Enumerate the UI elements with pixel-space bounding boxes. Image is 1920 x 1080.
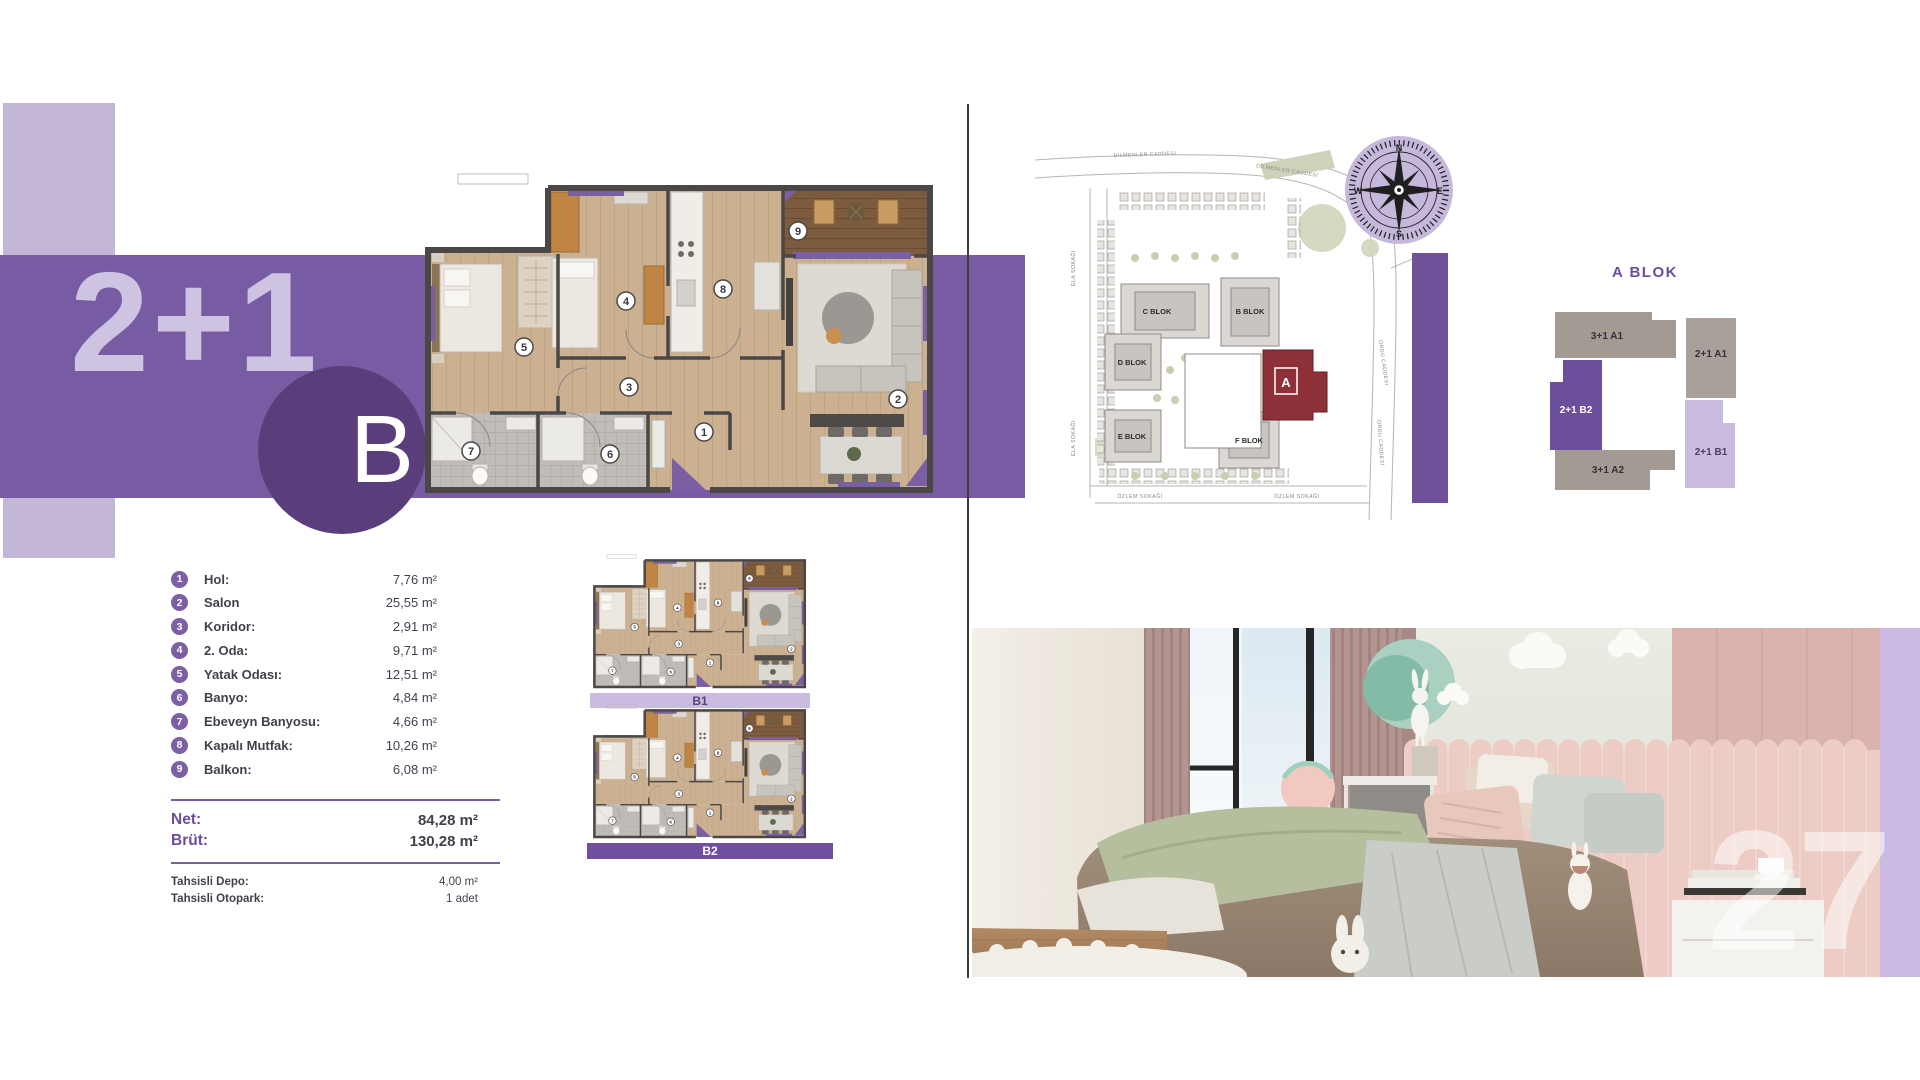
net-label: Net: [171, 811, 201, 829]
room-area: 9,71 m² [393, 643, 437, 658]
brut-label: Brüt: [171, 832, 208, 850]
list-item: 7Ebeveyn Banyosu:4,66 m² [171, 713, 437, 731]
block-diagram: A BLOK 3+1 A1 2+1 A1 2+1 B2 2+1 B1 3+1 A… [1540, 255, 1750, 500]
unit-variant-circle: B [258, 366, 426, 534]
room-label: Banyo: [204, 690, 248, 705]
otopark-label: Tahsisli Otopark: [171, 893, 264, 905]
room-label: Ebeveyn Banyosu: [204, 714, 320, 729]
map-block-a-label: A [1281, 375, 1291, 390]
room-label: Kapalı Mutfak: [204, 738, 293, 753]
map-label-e-blok: E BLOK [1118, 432, 1147, 441]
room-label: Balkon: [204, 762, 252, 777]
vertical-divider [967, 104, 969, 978]
depo-row: Tahsisli Depo: 4,00 m² [171, 876, 500, 888]
list-item: 8Kapalı Mutfak:10,26 m² [171, 736, 437, 754]
room-list: 1Hol:7,76 m² 2Salon25,55 m² 3Koridor:2,9… [171, 570, 437, 778]
unit-type-title: 2+1 [70, 252, 320, 394]
street-ela-2: ELA SOKAĞI [1070, 420, 1077, 456]
list-item: 3Koridor:2,91 m² [171, 618, 437, 636]
depo-value: 4,00 m² [439, 876, 500, 888]
floorplan-mini-b2 [590, 702, 810, 842]
brochure-page: 1 2 3 4 5 6 7 8 9 2+1 B 1Hol:7,76 m² [0, 0, 1920, 1080]
decor-bar-top-left [3, 103, 115, 255]
num-badge: 6 [171, 689, 188, 706]
block-diagram-units [1550, 312, 1736, 490]
num-badge: 3 [171, 618, 188, 635]
separator-line [171, 799, 500, 801]
label-2-1-b1: 2+1 B1 [1695, 447, 1728, 458]
map-label-d-blok: D BLOK [1118, 358, 1147, 367]
room-label: 2. Oda: [204, 643, 248, 658]
num-badge: 2 [171, 594, 188, 611]
page-number: 27 [1680, 808, 1888, 975]
label-3-1-a1: 3+1 A1 [1591, 331, 1624, 342]
map-label-f-blok: F BLOK [1235, 436, 1263, 445]
num-badge: 5 [171, 666, 188, 683]
otopark-row: Tahsisli Otopark: 1 adet [171, 893, 500, 905]
label-3-1-a2: 3+1 A2 [1592, 465, 1625, 476]
room-area: 4,66 m² [393, 714, 437, 729]
mini-plan-b2-label: B2 [702, 844, 717, 858]
room-label: Salon [204, 595, 239, 610]
floorplan-mini-b1 [590, 552, 810, 692]
street-ela-1: ELA SOKAĞI [1070, 250, 1077, 286]
floorplan-main [418, 168, 942, 502]
compass-n: N [1396, 143, 1403, 153]
room-area: 25,55 m² [386, 595, 437, 610]
num-badge: 1 [171, 571, 188, 588]
mini-plan-b2-bar: B2 [587, 843, 833, 859]
room-label: Hol: [204, 572, 229, 587]
separator-line [171, 862, 500, 864]
list-item: 5Yatak Odası:12,51 m² [171, 665, 437, 683]
list-item: 1Hol:7,76 m² [171, 570, 437, 588]
decor-bar-bottom-left [3, 498, 115, 558]
room-area: 12,51 m² [386, 667, 437, 682]
num-badge: 9 [171, 761, 188, 778]
label-2-1-b2: 2+1 B2 [1560, 405, 1593, 416]
label-2-1-a1: 2+1 A1 [1695, 349, 1728, 360]
otopark-value: 1 adet [446, 893, 500, 905]
street-ozlem-2: ÖZLEM SOKAĞI [1274, 493, 1319, 500]
room-label: Koridor: [204, 619, 255, 634]
list-item: 6Banyo:4,84 m² [171, 689, 437, 707]
num-badge: 4 [171, 642, 188, 659]
list-item: 2Salon25,55 m² [171, 594, 437, 612]
unit-variant-letter: B [350, 402, 414, 498]
map-label-b-blok: B BLOK [1236, 307, 1265, 316]
room-area: 7,76 m² [393, 572, 437, 587]
net-value: 84,28 m² [418, 812, 500, 829]
room-label: Yatak Odası: [204, 667, 282, 682]
unit-2-1-b1 [1685, 400, 1735, 488]
brut-row: Brüt: 130,28 m² [171, 832, 500, 850]
room-area: 2,91 m² [393, 619, 437, 634]
num-badge: 7 [171, 713, 188, 730]
brut-value: 130,28 m² [410, 833, 500, 850]
depo-label: Tahsisli Depo: [171, 876, 249, 888]
accent-bar [1412, 253, 1448, 503]
list-item: 9Balkon:6,08 m² [171, 760, 437, 778]
map-building-center [1185, 354, 1261, 448]
net-row: Net: 84,28 m² [171, 811, 500, 829]
pillow-gray-2 [1584, 793, 1664, 853]
compass-s: S [1396, 229, 1402, 239]
compass-icon: N E S W [1344, 135, 1454, 245]
compass-e: E [1437, 186, 1443, 196]
sheet-gray [1354, 840, 1540, 977]
list-item: 42. Oda:9,71 m² [171, 641, 437, 659]
map-label-c-blok: C BLOK [1143, 307, 1172, 316]
room-area: 6,08 m² [393, 762, 437, 777]
block-diagram-title: A BLOK [1612, 264, 1678, 281]
room-area: 10,26 m² [386, 738, 437, 753]
num-badge: 8 [171, 737, 188, 754]
room-area: 4,84 m² [393, 690, 437, 705]
street-ozlem-1: ÖZLEM SOKAĞI [1117, 493, 1162, 500]
compass-w: W [1354, 186, 1363, 196]
totals-section: Net: 84,28 m² Brüt: 130,28 m² Tahsisli D… [171, 795, 500, 925]
